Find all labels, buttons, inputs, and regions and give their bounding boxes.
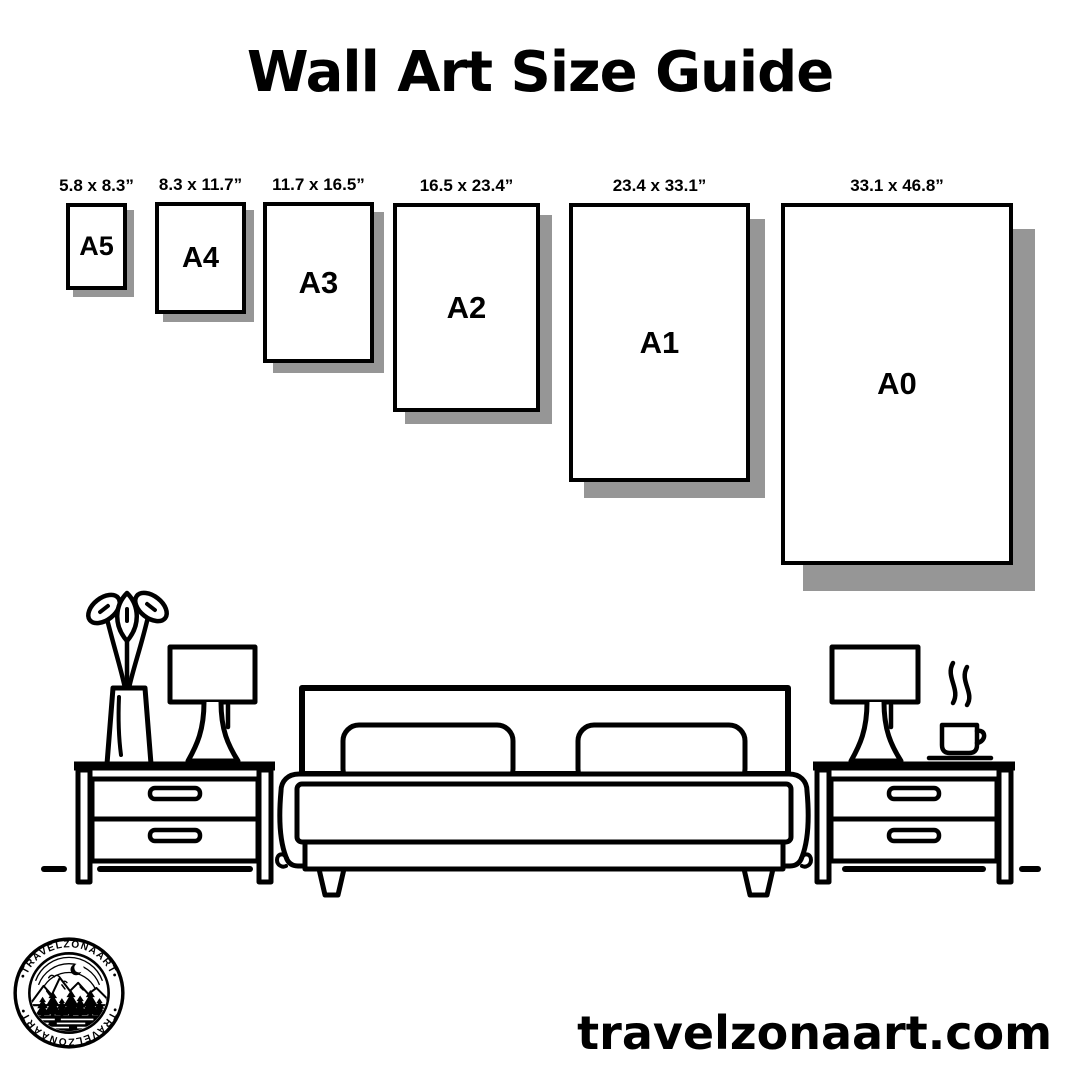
size-card-a2: 16.5 x 23.4” A2 [393,203,540,412]
brand-logo: •TRAVELZONAART• •TRAVELZONAART• [6,930,132,1056]
size-card-a0: 33.1 x 46.8” A0 [781,203,1013,565]
page-title: Wall Art Size Guide [0,40,1080,105]
size-code-label: A3 [299,265,339,301]
lamp-shade [170,647,255,702]
size-code-label: A5 [79,231,114,262]
nightstand-right [813,766,1015,882]
nightstand-leg [259,770,271,882]
size-card-a1: 23.4 x 33.1” A1 [569,203,750,482]
bedroom-scene [0,585,1080,905]
size-code-label: A2 [447,290,487,326]
lamp-base [851,702,901,761]
nightstand-leg [78,770,90,882]
paper-rect-a1: A1 [569,203,750,482]
lamp-left [170,647,255,761]
moon-icon [71,963,84,975]
paper-rect-a0: A0 [781,203,1013,565]
size-guide-poster: Wall Art Size Guide 5.8 x 8.3” A5 8.3 x … [0,0,1080,1080]
nightstand-leg [999,770,1011,882]
paper-rect-a2: A2 [393,203,540,412]
cup-body [942,725,977,753]
bed-foot-left [319,869,344,895]
lamp-shade [832,647,918,702]
bed-base [305,842,783,869]
paper-rect-a3: A3 [263,202,374,363]
size-code-label: A4 [182,242,219,275]
size-card-a4: 8.3 x 11.7” A4 [155,202,246,314]
lamp-right [832,647,918,761]
bed-foot-right [744,869,773,895]
nightstand-left [74,766,275,882]
size-code-label: A0 [877,366,917,402]
size-code-label: A1 [640,325,680,361]
plant-vase [83,587,172,764]
bed [277,688,811,895]
size-dims-label: 33.1 x 46.8” [741,176,1053,196]
nightstand-leg [817,770,829,882]
paper-rect-a4: A4 [155,202,246,314]
mattress-panel [297,784,791,842]
paper-rect-a5: A5 [66,203,127,290]
vase [107,688,151,764]
size-card-a5: 5.8 x 8.3” A5 [66,203,127,290]
size-card-a3: 11.7 x 16.5” A3 [263,202,374,363]
vase-accent [119,697,121,755]
lamp-base [188,702,238,761]
website-text: travelzonaart.com [577,1006,1052,1060]
coffee-cup [929,663,991,758]
steam-icon [965,667,970,705]
steam-icon [951,663,956,703]
